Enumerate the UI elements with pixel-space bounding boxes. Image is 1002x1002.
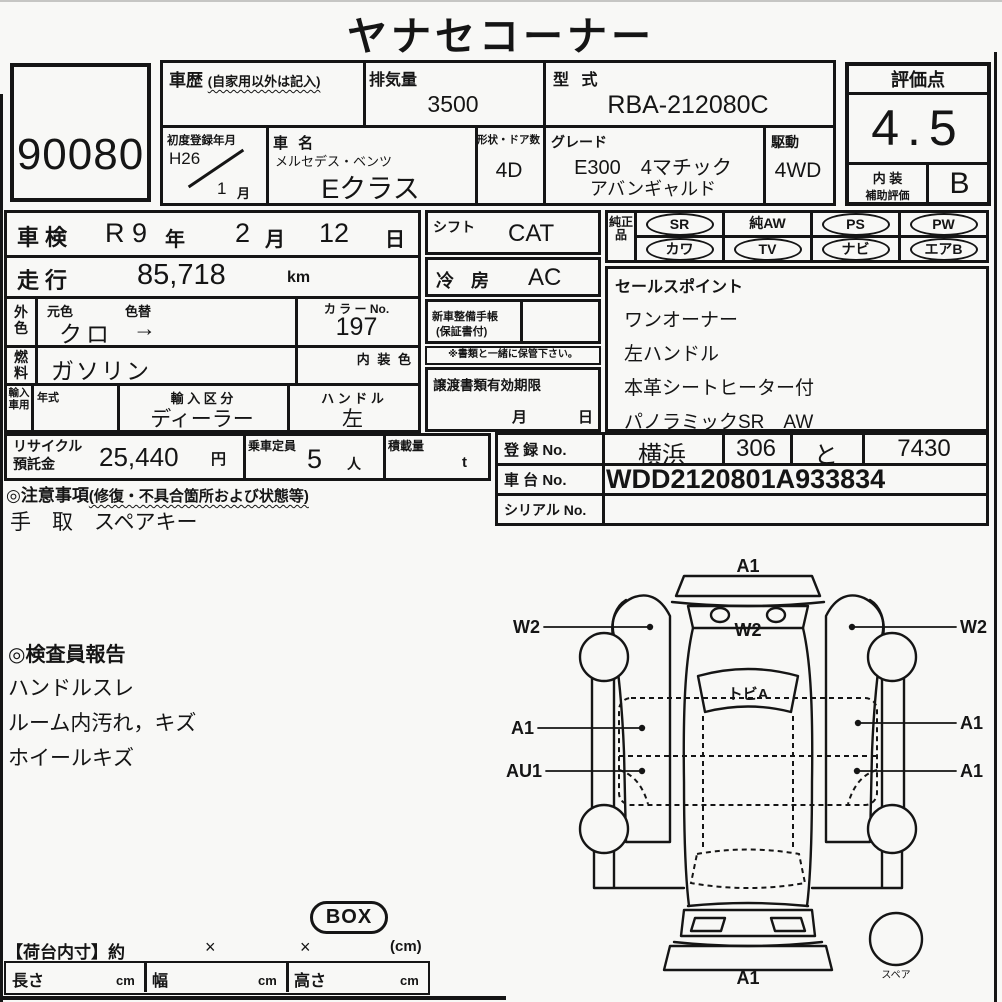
eq-kawa-badge: カワ [646, 238, 714, 261]
left-front-wheel [580, 633, 628, 681]
history-cell: 車歴 (自家用以外は記入) [169, 66, 320, 91]
left-tail-light [691, 918, 725, 931]
inspector-report-item: ホイールキズ [8, 742, 134, 772]
fuel-label: 燃料 [9, 350, 33, 381]
capacity-unit: 人 [347, 454, 361, 474]
history-label: 車歴 [169, 71, 203, 90]
rear-bumper [664, 946, 832, 970]
leader-dot [647, 624, 653, 630]
keep-note: ※書類と一緒に保管下さい。 [425, 346, 601, 365]
first-reg-month-unit: 月 [237, 183, 250, 202]
rear-bumper-grade-label: A1 [736, 968, 759, 988]
eq-tv-badge: TV [734, 238, 802, 261]
color-change-value: → [133, 315, 156, 342]
right-rear-quarter-lines [812, 850, 902, 888]
bottom-rule [2, 996, 506, 1000]
displacement-value: 3500 [363, 91, 543, 118]
interior-rating-row: 内 装 補助評価 B [849, 162, 987, 202]
right-rear-wheel [868, 805, 916, 853]
rating-label: 評価点 [849, 66, 987, 95]
eq-airbag-badge: エアB [910, 238, 978, 261]
cargo-unit-note: (cm) [390, 938, 422, 955]
model-code-value: RBA-212080C [543, 91, 833, 120]
first-reg-year: H26 [169, 149, 200, 169]
cargo-width-unit: cm [258, 973, 277, 988]
cargo-dims-table: 長さ cm 幅 cm 高さ cm [4, 961, 430, 995]
orig-color-value: クロ [59, 315, 113, 349]
left-rocker-panel [592, 678, 614, 808]
drive-value: 4WD [763, 159, 833, 183]
interior-label-line2: 補助評価 [849, 187, 926, 203]
scan-edge-top [0, 0, 1002, 2]
cautions-header-note: (修復・不具合箇所および状態等) [89, 488, 309, 505]
main-info-table: 車歴 (自家用以外は記入) 排気量 3500 型 式 RBA-212080C 初… [160, 60, 836, 206]
eq-aw: 純AW [725, 213, 810, 235]
spare-tire [870, 913, 922, 965]
import-division-value: ディーラー [117, 403, 287, 433]
exterior-label: 外色 [9, 305, 33, 336]
right-front-wheel [868, 633, 916, 681]
lot-number: 90080 [17, 130, 144, 198]
model-name: Eクラス [266, 167, 475, 206]
mileage-unit: km [287, 269, 310, 287]
recycle-value: 25,440 [99, 442, 179, 473]
shift-label: シフト [433, 217, 475, 237]
cargo-height-unit: cm [400, 973, 419, 988]
handle-value: 左 [287, 403, 418, 433]
recycle-label-line2: 預託金 [13, 456, 82, 474]
transfer-month-unit: 月 [512, 406, 527, 427]
sales-point-item: 本革シートヒーター付 [624, 373, 814, 400]
first-reg-label: 初度登録年月 [167, 132, 236, 148]
body-doors-label: 形状・ドア数 [477, 132, 540, 147]
trunk-edge [688, 903, 808, 906]
divider [286, 963, 289, 992]
eq-aw-text: 純AW [749, 213, 786, 234]
left-body-side [684, 628, 693, 906]
eq-pw: PW [901, 213, 986, 235]
interior-rating-label: 内 装 補助評価 [849, 165, 929, 205]
car-damage-diagram: A1 W2 W2 W2 トビA A1 A1 AU1 A1 A1 スペア [498, 552, 1002, 1002]
sheet-left-border [0, 94, 3, 1002]
divider [520, 302, 523, 341]
shift-cell: シフト CAT [425, 210, 601, 255]
aircon-cell: 冷 房 AC [425, 257, 601, 297]
leader-dot [855, 720, 861, 726]
divider [163, 125, 833, 128]
spare-tire-label: スペア [881, 970, 910, 981]
recycle-label-line1: リサイクル [13, 438, 82, 456]
cargo-height-label: 高さ [294, 967, 326, 991]
page-title: ヤナセコーナー [0, 4, 1002, 62]
cautions-header-row: ◎注意事項(修復・不具合箇所および状態等) [6, 481, 309, 506]
sales-point-item: パノラミックSR AW [624, 407, 813, 434]
model-code-label: 型 式 [553, 66, 601, 90]
shaken-month: 2 [235, 218, 250, 249]
left-rocker-grade-label: AU1 [506, 761, 542, 781]
cargo-header: 【荷台内寸】約 [6, 938, 125, 963]
eq-pw-badge: PW [910, 213, 978, 236]
leader-dot [639, 725, 645, 731]
reg-no-label: 登 録 No. [504, 439, 567, 460]
registration-table: 登 録 No. 横浜 306 と 7430 車 台 No. WDD2120801… [495, 432, 989, 526]
reg-class: 306 [722, 435, 790, 463]
cautions-header: ◎注意事項 [6, 486, 89, 505]
maintenance-book-line1: 新車整備手帳 [432, 308, 498, 324]
cargo-width-label: 幅 [152, 967, 168, 991]
rating-score: 4.5 [849, 98, 987, 160]
eq-tv: TV [725, 238, 810, 260]
sales-points-header: セールスポイント [615, 273, 743, 297]
shaken-day: 12 [319, 218, 349, 249]
leader-dot [639, 768, 645, 774]
divider [383, 436, 386, 478]
shaken-day-unit: 日 [385, 223, 405, 252]
divider [243, 436, 246, 478]
divider [7, 296, 418, 299]
divider [31, 386, 34, 430]
eq-sr: SR [637, 213, 722, 235]
eq-navi: ナビ [813, 238, 898, 260]
aircon-value: AC [528, 264, 561, 292]
inspector-report-item: ルーム内汚れ，キズ [8, 707, 196, 737]
interior-grade: B [932, 165, 987, 205]
body-doors-value: 4D [475, 159, 543, 183]
drive-label: 駆動 [771, 132, 799, 152]
history-note: (自家用以外は記入) [208, 74, 321, 89]
front-bumper [676, 576, 820, 596]
capacity-value: 5 [307, 444, 322, 475]
right-body-side [803, 628, 812, 906]
divider [7, 255, 418, 258]
cargo-length-label: 長さ [12, 967, 44, 991]
shaken-era: R 9 [105, 218, 147, 249]
cautions-text: 手 取 スペアキー [10, 506, 198, 536]
shaken-year-unit: 年 [165, 223, 185, 252]
eq-sr-badge: SR [646, 213, 714, 236]
mileage-label: 走行 [17, 263, 73, 295]
divider [144, 963, 147, 992]
interior-label-line1: 内 装 [849, 168, 926, 187]
maintenance-book-line2: (保証書付) [436, 323, 487, 339]
sales-point-item: ワンオーナー [624, 305, 738, 332]
grade-line2: アバンギャルド [543, 175, 763, 201]
front-bumper-grade-label: A1 [736, 556, 759, 576]
cargo-length-unit: cm [116, 973, 135, 988]
eq-airbag: エアB [901, 238, 986, 260]
auction-sheet: ヤナセコーナー 90080 車歴 (自家用以外は記入) 排気量 3500 型 式… [0, 0, 1002, 1002]
rear-window-dashed [691, 850, 805, 889]
sales-point-item: 左ハンドル [624, 339, 719, 366]
maintenance-book-cell: 新車整備手帳 (保証書付) [425, 299, 601, 344]
shift-value: CAT [508, 220, 554, 248]
right-door-grade-label: W2 [960, 617, 987, 637]
shaken-label: 車検 [17, 220, 73, 252]
transfer-docs-label: 譲渡書類有効期限 [433, 374, 541, 394]
import-label: 輸入車用 [8, 388, 30, 412]
sales-points-panel: セールスポイント ワンオーナー 左ハンドル 本革シートヒーター付 パノラミックS… [605, 266, 989, 432]
right-mid-grade-label: A1 [960, 713, 983, 733]
eq-navi-badge: ナビ [822, 238, 890, 261]
box-badge: BOX [310, 901, 388, 934]
first-reg-month: 1 [217, 179, 226, 199]
chassis-no-label: 車 台 No. [504, 469, 567, 490]
right-rocker-panel [882, 678, 904, 808]
left-door-grade-label: W2 [513, 617, 540, 637]
load-label: 積載量 [388, 437, 424, 454]
interior-color-label: 内 装 色 [295, 349, 413, 368]
mileage-value: 85,718 [137, 259, 226, 292]
roof-outline-dashed [619, 698, 877, 805]
eq-ps-badge: PS [822, 213, 890, 236]
chassis-no-value: WDD2120801A933834 [606, 464, 885, 495]
windshield-grade-label: トビA [728, 686, 769, 703]
left-table: 車検 R 9 年 2 月 12 日 走行 85,718 km 外色 元色 色替 … [4, 210, 421, 433]
import-year-label: 年式 [37, 389, 59, 405]
displacement-label: 排気量 [369, 66, 417, 90]
left-rear-wheel [580, 805, 628, 853]
car-name-label: 車 名 [273, 132, 316, 153]
eq-kawa: カワ [637, 238, 722, 260]
serial-no-label: シリアル No. [504, 500, 586, 520]
inspector-report-item: ハンドルスレ [8, 672, 134, 702]
left-rear-quarter-lines [594, 850, 684, 888]
recycle-label: リサイクル 預託金 [13, 438, 82, 473]
load-unit: t [462, 454, 467, 471]
hood-grade-label: W2 [735, 620, 762, 640]
cargo-times1: × [205, 937, 216, 958]
rating-box: 評価点 4.5 内 装 補助評価 B [845, 62, 991, 206]
reg-number: 7430 [862, 435, 986, 463]
shaken-month-unit: 月 [265, 223, 285, 252]
transfer-day-unit: 日 [578, 406, 593, 427]
lot-number-box: 90080 [10, 63, 151, 202]
recycle-unit: 円 [211, 448, 226, 469]
genuine-parts-label: 純正品 [609, 216, 633, 243]
color-no-value: 197 [295, 313, 418, 342]
capacity-label: 乗車定員 [248, 437, 296, 454]
divider [35, 299, 38, 383]
right-tail-light [771, 918, 805, 931]
left-washer-nozzle [711, 608, 729, 622]
eq-ps: PS [813, 213, 898, 235]
right-washer-nozzle [767, 608, 785, 622]
grade-label: グレード [551, 132, 607, 152]
transfer-docs-cell: 譲渡書類有効期限 月 日 [425, 367, 601, 432]
cargo-times2: × [300, 937, 311, 958]
genuine-parts-panel: 純正品 SR 純AW PS PW カワ TV ナビ エアB [605, 210, 989, 263]
leader-dot [854, 768, 860, 774]
inspector-report-header: ◎検査員報告 [8, 638, 125, 667]
leader-dot [849, 624, 855, 630]
fuel-value: ガソリン [51, 352, 151, 386]
left-mid-grade-label: A1 [511, 718, 534, 738]
recycle-row: リサイクル 預託金 25,440 円 乗車定員 5 人 積載量 t [4, 433, 491, 481]
right-rocker-grade-label: A1 [960, 761, 983, 781]
aircon-label: 冷 房 [436, 267, 495, 293]
